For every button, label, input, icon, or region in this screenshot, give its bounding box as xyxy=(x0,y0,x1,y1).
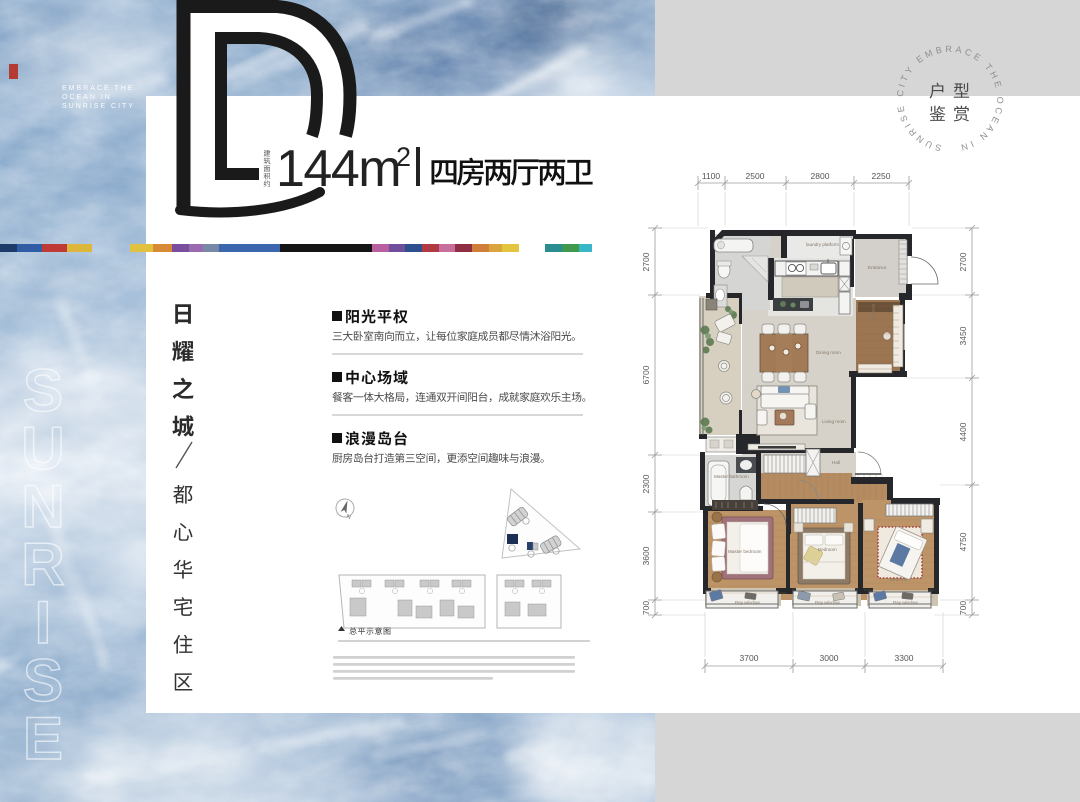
svg-text:6700: 6700 xyxy=(641,365,651,384)
svg-text:Living room: Living room xyxy=(822,419,846,424)
svg-text:Bedroom: Bedroom xyxy=(890,577,909,582)
svg-text:4750: 4750 xyxy=(958,532,968,551)
svg-text:2500: 2500 xyxy=(746,171,765,181)
svg-text:laundry platform: laundry platform xyxy=(806,242,839,247)
svg-text:Bay window: Bay window xyxy=(815,600,840,605)
svg-text:3450: 3450 xyxy=(958,326,968,345)
svg-text:3700: 3700 xyxy=(740,653,759,663)
svg-text:2700: 2700 xyxy=(958,252,968,271)
svg-text:Master bathroom: Master bathroom xyxy=(714,474,749,479)
svg-text:2300: 2300 xyxy=(641,474,651,493)
svg-text:Hall: Hall xyxy=(832,460,840,465)
svg-text:Bay window: Bay window xyxy=(735,600,760,605)
svg-text:Master bedroom: Master bedroom xyxy=(728,549,762,554)
svg-text:Bay window: Bay window xyxy=(893,600,918,605)
svg-text:3300: 3300 xyxy=(895,653,914,663)
svg-text:3000: 3000 xyxy=(820,653,839,663)
svg-text:Entrance: Entrance xyxy=(868,265,887,270)
svg-text:Bedroom: Bedroom xyxy=(871,304,876,323)
svg-text:700: 700 xyxy=(641,601,651,615)
svg-text:N: N xyxy=(345,514,351,521)
svg-text:2250: 2250 xyxy=(872,171,891,181)
svg-text:2800: 2800 xyxy=(811,171,830,181)
svg-text:3600: 3600 xyxy=(641,546,651,565)
svg-text:1100: 1100 xyxy=(702,171,721,181)
svg-text:700: 700 xyxy=(958,601,968,615)
svg-text:SUNRISE CITY EMBRACE THE OCEAN: SUNRISE CITY EMBRACE THE OCEAN IN xyxy=(895,44,1005,153)
svg-text:Bedroom: Bedroom xyxy=(818,547,837,552)
svg-text:Dining room: Dining room xyxy=(816,350,841,355)
svg-text:2700: 2700 xyxy=(641,252,651,271)
svg-text:4400: 4400 xyxy=(958,422,968,441)
